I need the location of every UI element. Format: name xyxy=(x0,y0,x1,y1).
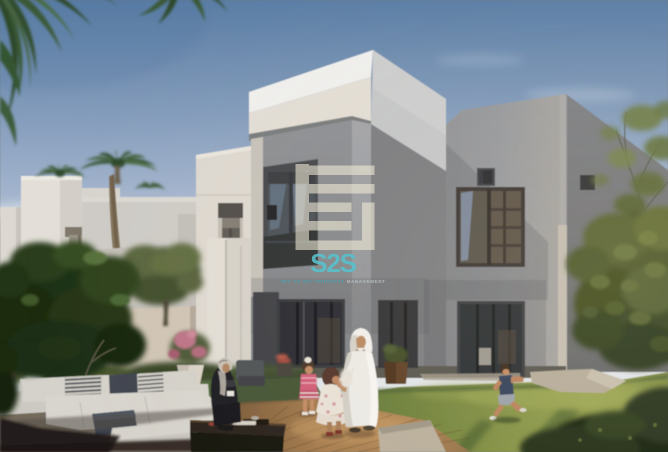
svg-text:SEA TO SKY PROPERTY MANAGEMENT: SEA TO SKY PROPERTY MANAGEMENT xyxy=(281,279,386,284)
svg-text:S2S: S2S xyxy=(310,248,356,278)
